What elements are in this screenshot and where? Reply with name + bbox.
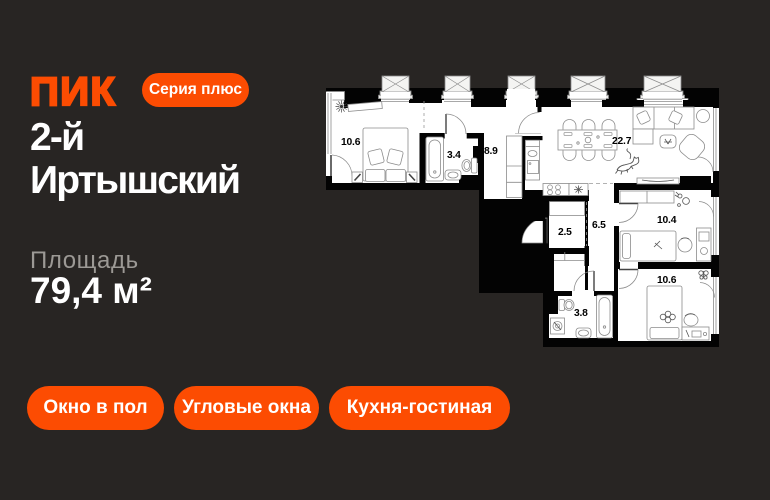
svg-text:22.7: 22.7 xyxy=(612,136,632,147)
svg-text:10.6: 10.6 xyxy=(341,137,361,148)
svg-text:10.6: 10.6 xyxy=(657,275,677,286)
svg-text:3.8: 3.8 xyxy=(574,308,588,319)
svg-text:8.9: 8.9 xyxy=(484,146,498,157)
svg-text:6.5: 6.5 xyxy=(592,220,606,231)
svg-text:3.4: 3.4 xyxy=(447,150,461,161)
svg-text:2.5: 2.5 xyxy=(558,227,572,238)
svg-text:10.4: 10.4 xyxy=(657,215,677,226)
